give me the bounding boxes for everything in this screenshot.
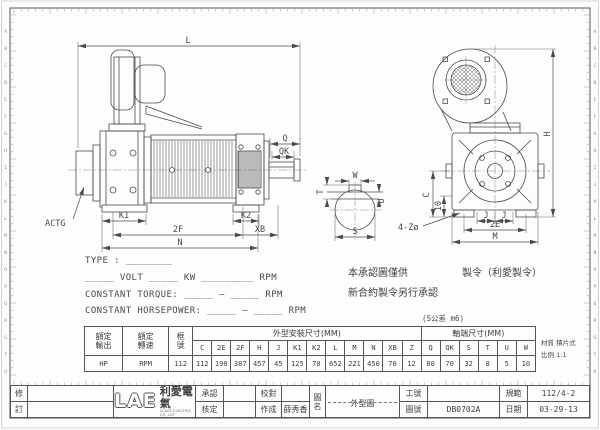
dim-col-n: N <box>364 341 383 356</box>
revision-label-top: 修 <box>11 386 27 401</box>
work-no-value-col: DB0702A <box>427 386 499 417</box>
dim-value: 5 <box>497 356 516 372</box>
frame-letter-left: Q <box>4 301 7 307</box>
dim-label-q: Q <box>282 134 287 144</box>
approve-value <box>224 386 255 401</box>
check-value <box>224 401 255 417</box>
scale-note: 比例 1:1 <box>541 349 567 359</box>
note-mfg-order: 製令（利愛製令） <box>462 264 542 279</box>
dim-col-u: U <box>497 341 516 356</box>
drawing-name-label: 圖名 <box>310 386 325 417</box>
frame-letter-left: R <box>4 318 7 324</box>
horsepower-line: CONSTANT HORSEPOWER: _____ — _____ RPM <box>85 306 306 316</box>
dim-label-h: H <box>543 131 553 136</box>
frame-letter-right: P <box>594 284 597 290</box>
tolerance-note: (S公差 m6) <box>422 313 464 324</box>
proof-value-col: 薛秀香 <box>281 386 309 417</box>
material-note: 材質 積片式 <box>541 337 576 347</box>
torque-line: CONSTANT TORQUE: _____ — _____ RPM <box>85 290 283 300</box>
dim-value: 125 <box>288 356 307 372</box>
drawing-no-label: 圖號 <box>400 401 427 417</box>
work-no-value <box>428 386 499 401</box>
frame-letter-right: M <box>594 233 597 239</box>
outline-dims-group-header: 外型安裝尺寸(MM) <box>193 327 421 341</box>
dim-value: 8 <box>478 356 497 372</box>
frame-letter-right: K <box>594 199 597 205</box>
frame-letter-left: M <box>4 233 7 239</box>
dim-col-c: C <box>193 341 212 356</box>
revision-entries-col <box>27 386 113 417</box>
drawing-name-cell: 外型圖 <box>326 386 399 417</box>
made-value: 薛秀香 <box>282 401 309 417</box>
frame-letter-left: D <box>4 80 7 86</box>
dim-col-2e: 2E <box>212 341 231 356</box>
company-logo: LAE 利愛電氣 LI AVE ELECTRIC CO.,LDT <box>114 386 195 417</box>
frame-letter-left: B <box>4 46 7 52</box>
drawing-sheet: AABBCCDDEEFFGGHHIIJJKKLLMMNNOOPPQQRRSSTT… <box>0 0 600 430</box>
frame-letter-right: I <box>594 165 597 171</box>
shaft-dims-group-header: 軸端尺寸(MM) <box>421 327 535 341</box>
dim-label-10: 10 <box>434 201 444 211</box>
dim-col-z: Z <box>402 341 421 356</box>
dim-label-j-right: J <box>501 211 506 221</box>
label-4-z-holes: 4-Zø <box>398 223 418 233</box>
frame-letter-right: N <box>594 250 597 256</box>
col-rated-speed: 額定 轉速 <box>123 327 169 356</box>
dim-label-n: N <box>177 238 182 248</box>
dim-value: 10 <box>516 356 535 372</box>
frame-letter-left: A <box>4 29 7 35</box>
dim-value: 450 <box>364 356 383 372</box>
dim-value: 70 <box>440 356 459 372</box>
frame-letter-left: O <box>4 267 7 273</box>
proof-value <box>282 386 309 401</box>
frame-letter-right: A <box>594 29 597 35</box>
frame-letter-right: Q <box>594 301 597 307</box>
drawing-name-value-col: 外型圖 <box>325 386 399 417</box>
title-block: 修 訂 LAE 利愛電氣 LI AVE ELECTRIC CO.,LDT 承認 … <box>10 385 590 418</box>
dim-col-qk: QK <box>440 341 459 356</box>
dim-label-k1: K1 <box>119 211 129 221</box>
dim-label-u: U <box>377 198 387 203</box>
company-name-cn: 利愛電氣 <box>160 386 195 410</box>
dim-value: 70 <box>383 356 402 372</box>
dim-col-t: T <box>478 341 497 356</box>
proof-label: 校對 <box>256 386 281 401</box>
revision-label-col: 修 訂 <box>11 386 27 417</box>
revision-entry-2 <box>28 401 113 417</box>
date-value: 03-29-13 <box>528 401 589 417</box>
spec-value-col: 112/4-2 03-29-13 <box>527 386 589 417</box>
dim-col-m: M <box>345 341 364 356</box>
fan-inlet-screen <box>451 65 481 95</box>
frame-letter-left: P <box>4 284 7 290</box>
dim-label-w: W <box>352 171 358 181</box>
logo-col: LAE 利愛電氣 LI AVE ELECTRIC CO.,LDT <box>113 386 195 417</box>
dim-col-w: W <box>516 341 535 356</box>
proof-label-col: 校對 作成 <box>255 386 281 417</box>
dim-value: 457 <box>250 356 269 372</box>
dim-col-k2: K2 <box>307 341 326 356</box>
frame-letter-left: F <box>4 114 7 120</box>
company-name-en: LI AVE ELECTRIC CO.,LDT <box>160 410 195 417</box>
type-line: TYPE : ________ <box>85 256 172 266</box>
frame-letter-right: H <box>594 148 597 154</box>
approve-label: 承認 <box>196 386 223 401</box>
frame-letter-right: C <box>594 63 597 69</box>
frame-letter-left: G <box>4 131 7 137</box>
frame-letter-left: H <box>4 148 7 154</box>
dim-value: 652 <box>326 356 345 372</box>
col-rated-output: 額定 輸出 <box>85 327 123 356</box>
frame-letter-left: K <box>4 199 7 205</box>
dim-col-s: S <box>459 341 478 356</box>
dim-value: 112 <box>193 356 212 372</box>
frame-letter-right: T <box>594 352 597 358</box>
frame-letter-left: I <box>4 165 7 171</box>
drawing-no-value: DB0702A <box>428 401 499 417</box>
dim-value: 12 <box>402 356 421 372</box>
frame-letter-left: L <box>4 216 7 222</box>
dim-col-xb: XB <box>383 341 402 356</box>
dim-col-j: J <box>269 341 288 356</box>
frame-letter-right: R <box>594 318 597 324</box>
frame-letter-left: E <box>4 97 7 103</box>
spec-value: 112/4-2 <box>528 386 589 401</box>
date-label: 日期 <box>500 401 527 417</box>
approve-label-col: 承認 核定 <box>195 386 223 417</box>
logo-lae-text: LAE <box>114 392 157 411</box>
dim-col-k1: K1 <box>288 341 307 356</box>
dim-label-l: L <box>185 36 190 46</box>
frame-letter-left: S <box>4 335 7 341</box>
dim-col-q: Q <box>421 341 440 356</box>
col-frame-no: 框 號 <box>169 327 193 356</box>
check-label: 核定 <box>196 401 223 417</box>
made-label: 作成 <box>256 401 281 417</box>
dim-label-t: T <box>316 189 326 194</box>
frame-letter-left: T <box>4 352 7 358</box>
frame-letter-left: C <box>4 63 7 69</box>
note-approval-drawing: 本承認圖僅供 <box>348 264 408 279</box>
drawing-name-value: 外型圖 <box>351 398 375 409</box>
frame-letter-right: L <box>594 216 597 222</box>
frame-letter-left: N <box>4 250 7 256</box>
revision-label-bottom: 訂 <box>11 401 27 417</box>
dim-value: 80 <box>421 356 440 372</box>
revision-entry-1 <box>28 386 113 401</box>
frame-letter-right: O <box>594 267 597 273</box>
dim-label-xb: XB <box>255 225 265 235</box>
frame-letter-right: D <box>594 80 597 86</box>
dim-label-s: S <box>352 227 357 237</box>
dim-label-m: M <box>492 232 497 242</box>
frame-letter-right: S <box>594 335 597 341</box>
dim-col-2f: 2F <box>231 341 250 356</box>
dim-col-l: L <box>326 341 345 356</box>
dimension-table-container: 額定 輸出額定 轉速框 號外型安裝尺寸(MM)軸端尺寸(MM)C2E2FHJK1… <box>84 326 536 372</box>
dimension-table: 額定 輸出額定 轉速框 號外型安裝尺寸(MM)軸端尺寸(MM)C2E2FHJK1… <box>84 326 536 372</box>
spec-label: 規範 <box>500 386 527 401</box>
frame-letter-left: J <box>4 182 7 188</box>
vent-grille <box>238 151 261 188</box>
frame-no-value: 112 <box>169 356 193 372</box>
dim-value: 45 <box>269 356 288 372</box>
frame-letter-right: U <box>594 369 597 375</box>
dim-label-2f: 2F <box>173 225 183 235</box>
dim-label-k2: K2 <box>241 211 251 221</box>
work-no-label: 工號 <box>400 386 427 401</box>
frame-letter-left: U <box>4 369 7 375</box>
rated-output-unit: HP <box>85 356 123 372</box>
dim-value: 221 <box>345 356 364 372</box>
frame-letter-right: E <box>594 97 597 103</box>
spec-label-col: 規範 日期 <box>499 386 527 417</box>
frame-letter-right: F <box>594 114 597 120</box>
rated-speed-unit: RPM <box>123 356 169 372</box>
work-no-label-col: 工號 圖號 <box>399 386 427 417</box>
label-actg: ACTG <box>45 219 65 229</box>
frame-letter-right: B <box>594 46 597 52</box>
drawing-name-label-col: 圖名 <box>309 386 325 417</box>
approve-value-col <box>223 386 255 417</box>
note-new-contract: 新合約製令另行承認 <box>348 284 438 299</box>
dim-value: 387 <box>231 356 250 372</box>
dim-label-2e: 2E <box>490 220 500 230</box>
dim-label-j-left: J <box>483 211 488 221</box>
dim-value: 32 <box>459 356 478 372</box>
power-line: _____ VOLT _____ KW _________ RPM <box>85 273 277 283</box>
dim-col-h: H <box>250 341 269 356</box>
dim-value: 190 <box>212 356 231 372</box>
dim-label-c: C <box>422 192 432 197</box>
dim-label-qk: QK <box>279 147 290 157</box>
dim-value: 70 <box>307 356 326 372</box>
frame-letter-right: G <box>594 131 597 137</box>
frame-letter-right: J <box>594 182 597 188</box>
